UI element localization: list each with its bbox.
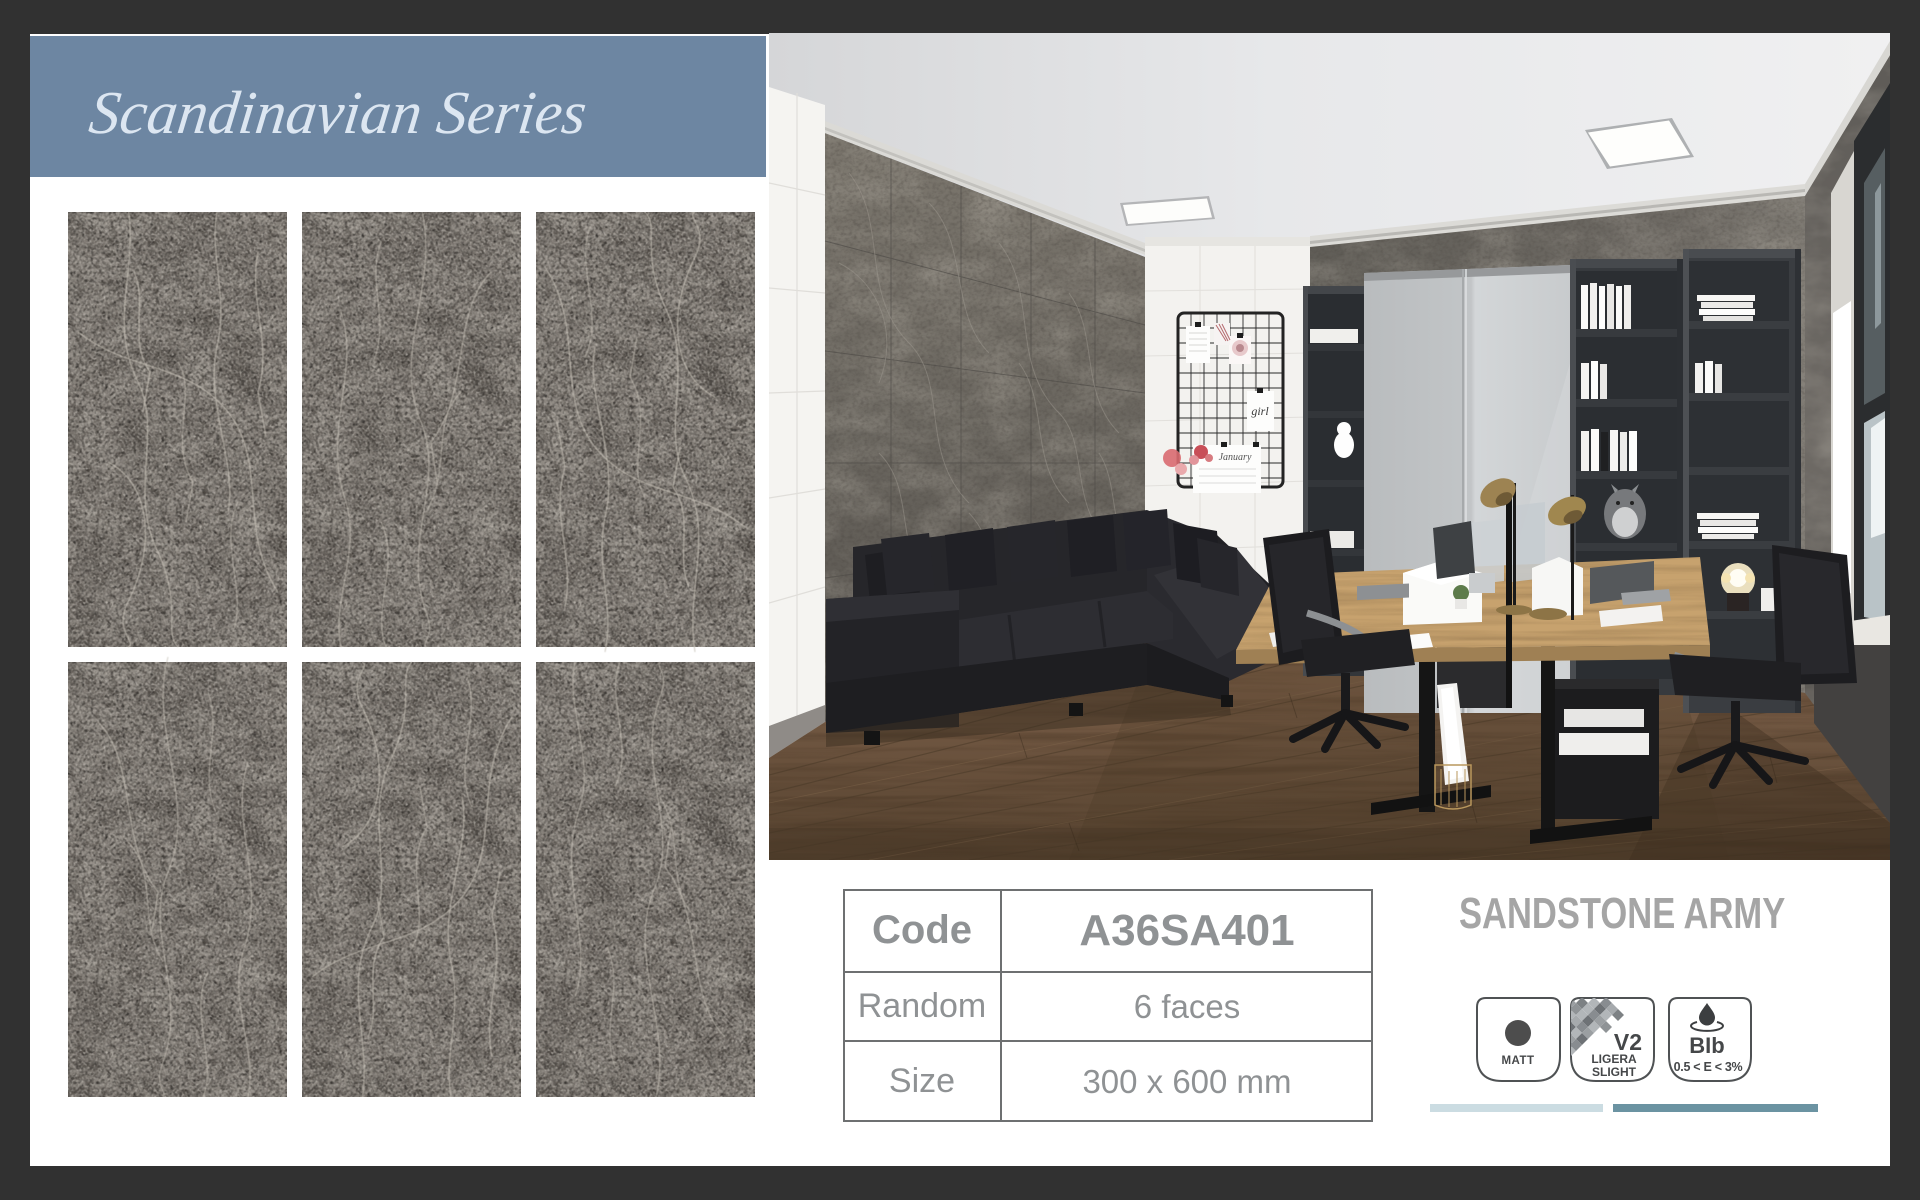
svg-text:MATT: MATT (1501, 1055, 1534, 1067)
svg-text:January: January (1219, 452, 1252, 463)
svg-text:girl: girl (1251, 404, 1269, 418)
svg-text:SLIGHT: SLIGHT (1592, 1065, 1637, 1079)
svg-text:0.5 < E < 3%: 0.5 < E < 3% (1674, 1060, 1743, 1074)
svg-text:BIb: BIb (1689, 1033, 1724, 1058)
svg-text:LIGERA: LIGERA (1591, 1052, 1637, 1066)
